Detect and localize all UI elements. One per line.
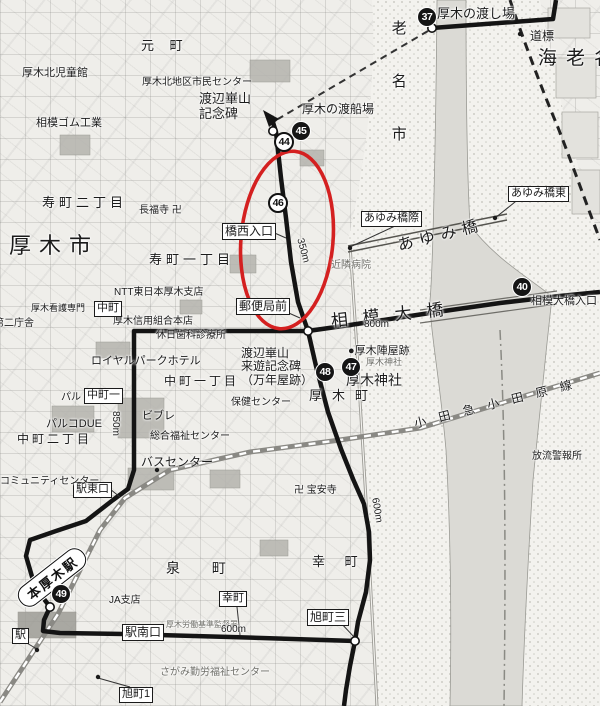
label-kazan-kinenhi: 渡辺崋山 記念碑 (199, 92, 251, 121)
label-parco-due: パルコDUE (46, 418, 102, 430)
label-motomachi: 元 町 (141, 39, 189, 54)
label-hoken-center: 保健センター (231, 397, 291, 408)
label-young-community-center: ヤングコミュニティセンター (0, 476, 99, 487)
label-sagami-ohashi-iriguchi: 相模大橋入口 (531, 295, 597, 307)
label-horyu-keihojo: 放流警報所 (532, 451, 582, 462)
labels-layer: 本厚木駅 厚木の渡し場道標海老名老名市渡辺崋山 記念碑厚木の渡船場橋西入口郵便局… (0, 0, 600, 706)
label-kotobuki-2chome: 寿町二丁目 (42, 196, 127, 211)
route-marker-37: 37 (418, 8, 436, 26)
label-nakacho-2chome: 中町二丁目 (17, 433, 92, 446)
label-bus-center: バスセンター (141, 456, 213, 469)
label-nakacho: 中町 (94, 301, 122, 317)
scanned-route-map: 本厚木駅 厚木の渡し場道標海老名老名市渡辺崋山 記念碑厚木の渡船場橋西入口郵便局… (0, 0, 600, 706)
label-dist-850m: 850m (110, 411, 121, 436)
label-kyujitsu-shika: 休日歯科診療所 (156, 330, 226, 341)
label-jinja-big: 厚木神社 (346, 373, 402, 389)
label-jidokan: 厚木北児童館 (22, 67, 88, 79)
label-sogo-fukushi-center: 総合福祉センター (150, 431, 230, 442)
label-dist-800m: 800m (364, 319, 389, 330)
label-dist-350m: 350m (294, 237, 311, 264)
label-ja-shiten: JA支店 (109, 595, 141, 606)
label-ntt-atsugi: NTT東日本厚木支店 (114, 287, 203, 298)
label-yubinkyoku-mae: 郵便局前 (236, 298, 290, 315)
route-marker-44: 44 (274, 132, 294, 152)
label-pal: パル (61, 392, 81, 403)
label-ayumibashi-giwa: あゆみ橋際 (361, 211, 422, 227)
label-izumicho: 泉 町 (166, 561, 240, 577)
label-kazan-raiyu-kinenhi: 渡辺崋山 来遊記念碑 （万年屋跡） (241, 347, 313, 387)
route-marker-46: 46 (268, 193, 288, 213)
label-jinya-ato: ●厚木陣屋跡 (348, 345, 410, 357)
label-atsugi-watashiba: 厚木の渡し場 (437, 7, 515, 22)
label-asahicho-1: 旭町1 (119, 687, 153, 703)
label-saiwaicho: 幸 町 (312, 555, 366, 570)
label-sagami-gomu: 相模ゴム工業 (36, 117, 102, 129)
label-ayumibashi-higashi: あゆみ橋東 (508, 186, 569, 202)
label-nakacho-1: 中町一 (84, 388, 123, 404)
hon-atsugi-station-label: 本厚木駅 (13, 544, 90, 611)
route-marker-40: 40 (513, 278, 531, 296)
label-sagami-ohashi-big: 相模大橋 (330, 299, 459, 331)
label-hoanji: 卍 宝安寺 (294, 485, 337, 496)
label-dist-600m-east: 600m (369, 497, 384, 524)
label-hashinishi-iriguchi: 橋西入口 (222, 223, 276, 240)
label-dist-600m-south: 600m (221, 624, 246, 635)
label-dai2-chosha: 第二庁舎 (0, 318, 34, 329)
label-kita-chiku-center: 厚木北地区市民センター (142, 77, 252, 88)
label-odakyu-odawara-line: 小田急小田原線 (413, 376, 586, 431)
label-chofukuji: 長福寺 卍 (139, 205, 182, 216)
label-ebina-shi-vertical: 老名市 (389, 20, 406, 179)
label-vivre: ビブレ (142, 410, 175, 422)
label-kotobuki-1chome: 寿町一丁目 (149, 253, 234, 268)
label-asahicho-3: 旭町三 (307, 609, 349, 626)
label-eki: 駅 (12, 628, 29, 644)
label-tosenba: 厚木の渡船場 (302, 103, 374, 116)
route-marker-47: 47 (342, 358, 360, 376)
route-marker-48: 48 (316, 363, 334, 381)
label-dohyo: 道標 (530, 30, 554, 43)
label-atsugi-machi: 厚木町 (309, 389, 378, 404)
label-saiwaicho-box: 幸町 (219, 591, 247, 607)
label-kinrin-byoin: 近隣病院 (331, 260, 371, 271)
label-jinja-small: 厚木神社 (366, 357, 402, 367)
route-marker-45: 45 (292, 122, 310, 140)
label-ebina-city-big: 海老名 (538, 48, 600, 69)
label-royal-park-hotel: ロイヤルパークホテル (91, 355, 201, 367)
label-eki-minamiguchi: 駅南口 (122, 624, 164, 641)
label-shinyo-kumiai: 厚木信用組合本店 (113, 316, 193, 327)
route-marker-49: 49 (52, 585, 70, 603)
label-nakacho-1chome: 中町一丁目 (164, 375, 239, 388)
label-kango-semmon: 厚木看護専門 (31, 303, 85, 313)
label-atsugi-shi-big: 厚木市 (9, 234, 99, 259)
label-kinro-fukushi: さがみ勤労福祉センター (160, 667, 270, 678)
